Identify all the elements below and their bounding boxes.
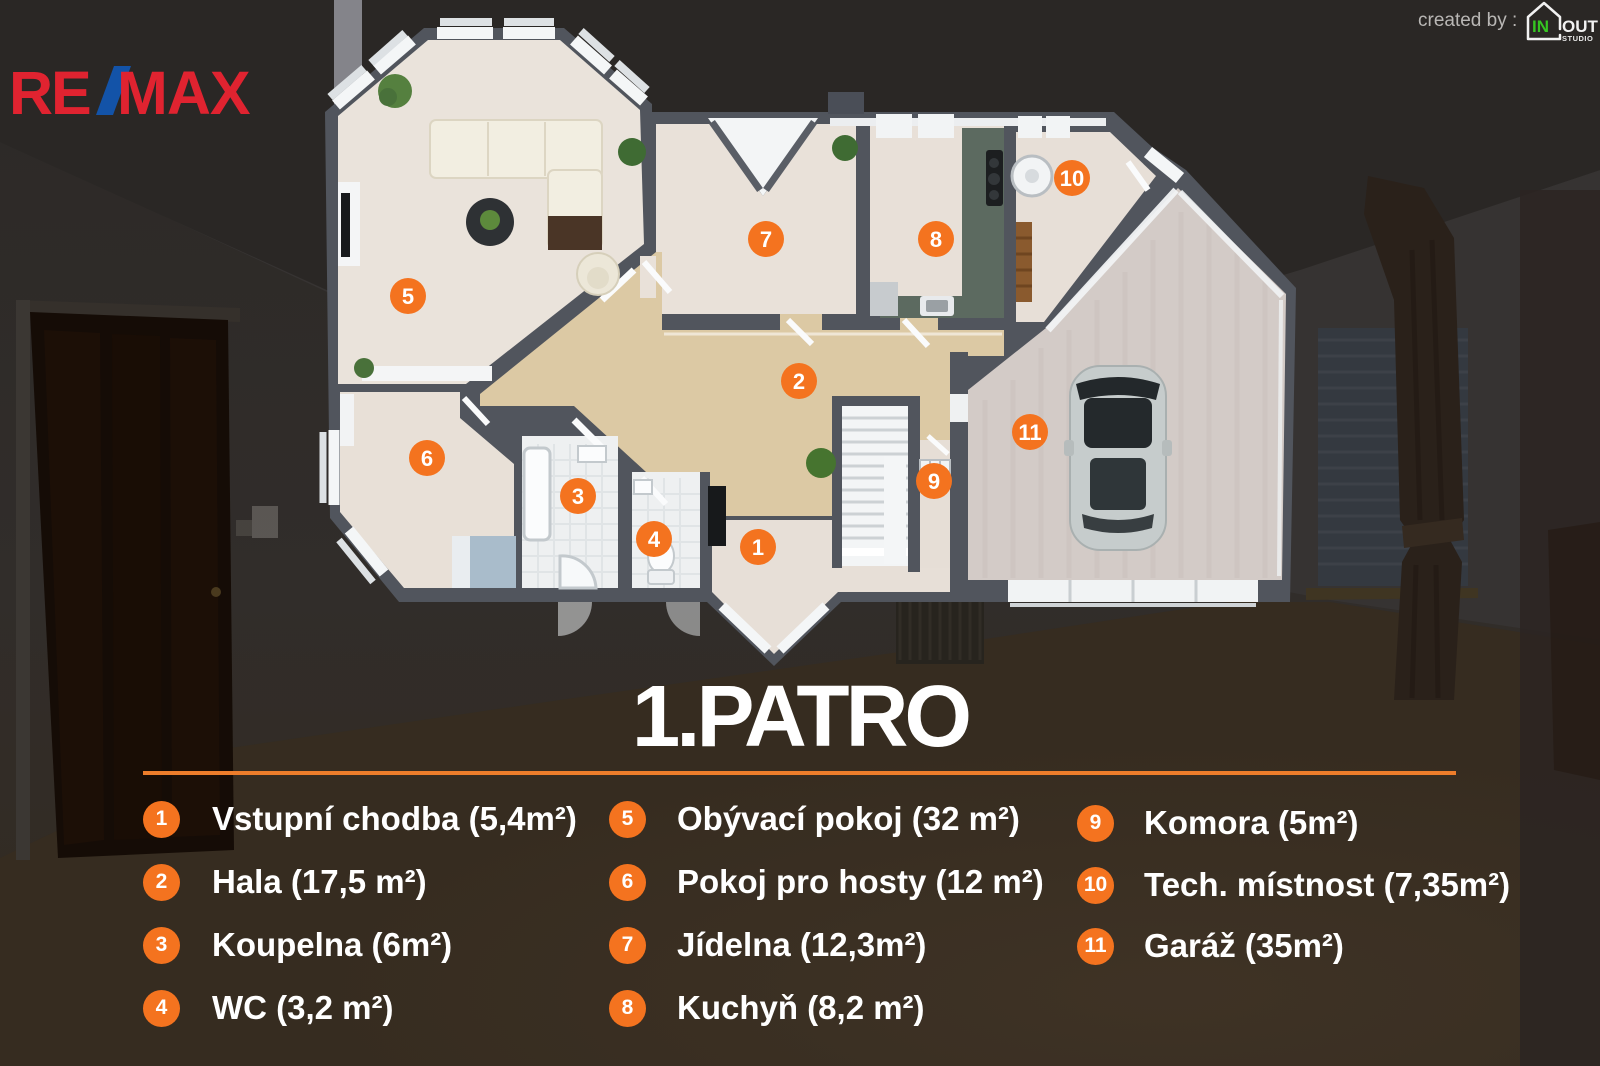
svg-text:5: 5	[402, 284, 414, 309]
svg-text:10: 10	[1060, 166, 1084, 191]
svg-text:1: 1	[752, 535, 764, 560]
svg-text:6: 6	[421, 446, 433, 471]
svg-text:11: 11	[1018, 420, 1041, 445]
svg-text:2: 2	[793, 369, 805, 394]
svg-text:8: 8	[930, 227, 942, 252]
svg-text:9: 9	[928, 469, 940, 494]
svg-text:IN: IN	[1532, 17, 1549, 36]
svg-text:MAX: MAX	[117, 59, 251, 127]
svg-text:4: 4	[648, 527, 661, 552]
svg-text:7: 7	[760, 227, 772, 252]
svg-text:RE: RE	[9, 59, 90, 127]
svg-text:3: 3	[572, 484, 584, 509]
svg-text:STUDIO: STUDIO	[1562, 34, 1593, 43]
